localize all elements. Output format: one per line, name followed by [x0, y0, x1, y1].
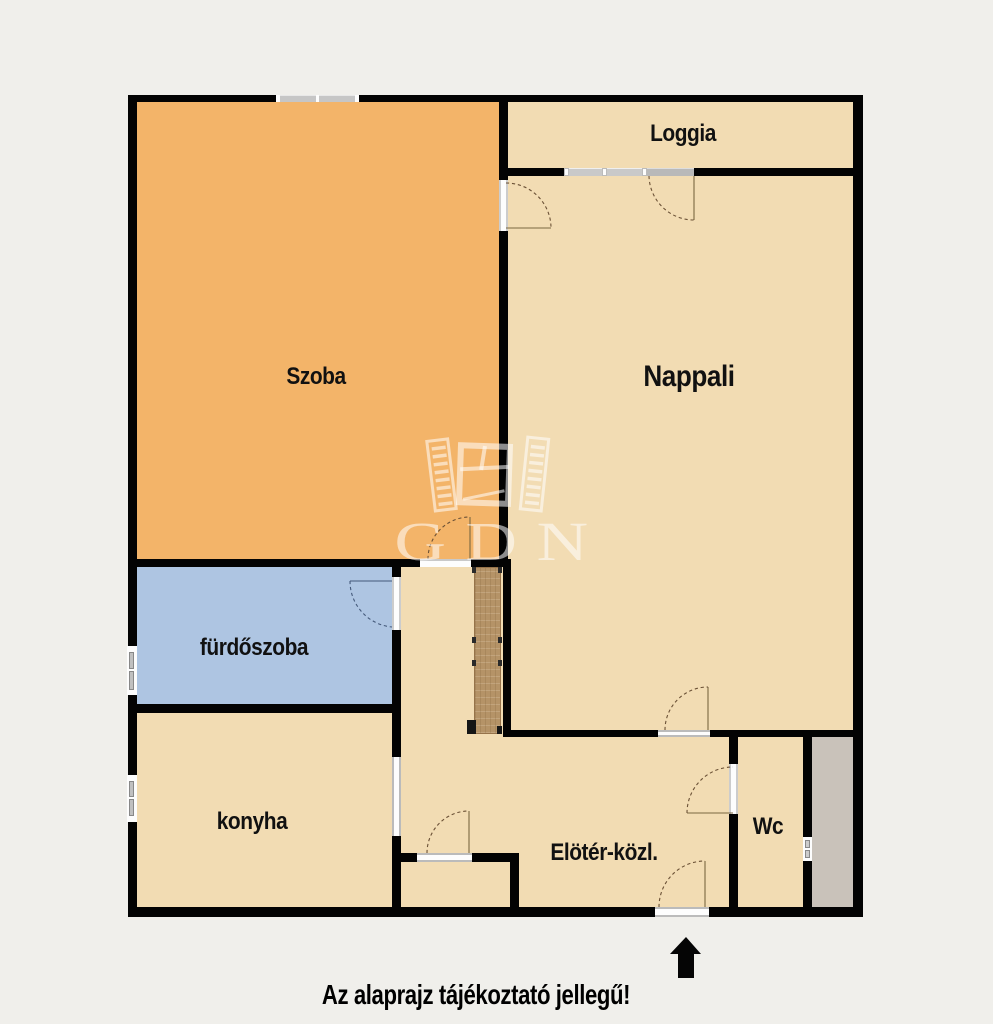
svg-text:GDN: GDN [394, 511, 607, 572]
